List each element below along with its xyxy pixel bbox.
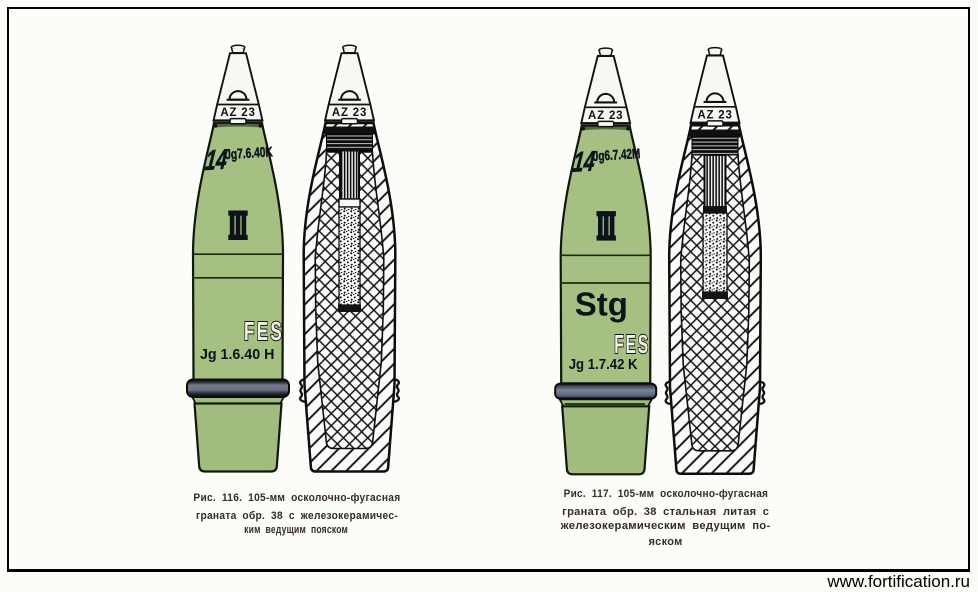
svg-text:Jg7.6.40K: Jg7.6.40K bbox=[225, 144, 274, 163]
svg-text:Jg 1.7.42 K: Jg 1.7.42 K bbox=[569, 355, 639, 372]
svg-text:Jg 1.6.40 H: Jg 1.6.40 H bbox=[200, 346, 274, 362]
svg-text:Stg: Stg bbox=[575, 285, 628, 322]
svg-text:FES: FES bbox=[244, 316, 284, 346]
svg-text:Jg6.7.42M: Jg6.7.42M bbox=[592, 145, 640, 164]
